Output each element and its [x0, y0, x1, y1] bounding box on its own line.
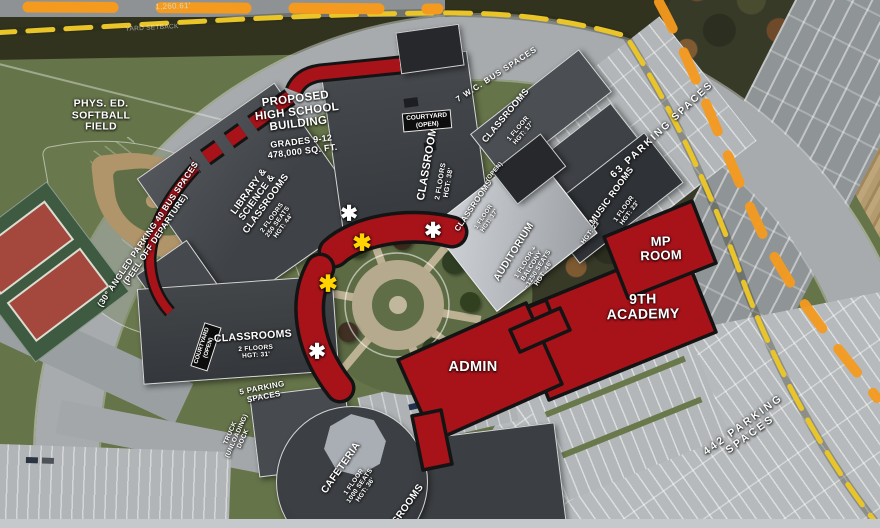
asterisk-marker-white: ✱ — [308, 340, 326, 365]
label-admin: ADMIN — [448, 360, 497, 376]
plaza-outline — [345, 253, 449, 357]
label-mp-room: MP ROOM — [640, 234, 683, 264]
label-boundary-dimension: 1,260.61' — [155, 2, 191, 12]
label-softball-field: PHYS. ED. SOFTBALL FIELD — [72, 99, 130, 134]
label-classrooms-south-sub: 2 FLOORS HGT: 31' — [238, 344, 274, 361]
asterisk-marker-yellow: ✱ — [352, 230, 371, 257]
bus-queue-marks — [28, 7, 438, 9]
photo-edge-strip — [0, 519, 880, 528]
asterisk-marker-white: ✱ — [424, 219, 442, 244]
asterisk-marker-yellow: ✱ — [318, 271, 337, 298]
aerial-site-plan: PHYS. ED. SOFTBALL FIELD (30° ANGLED PAR… — [0, 0, 880, 528]
label-9th-academy: 9TH ACADEMY — [606, 291, 679, 323]
asterisk-marker-white: ✱ — [340, 202, 358, 227]
